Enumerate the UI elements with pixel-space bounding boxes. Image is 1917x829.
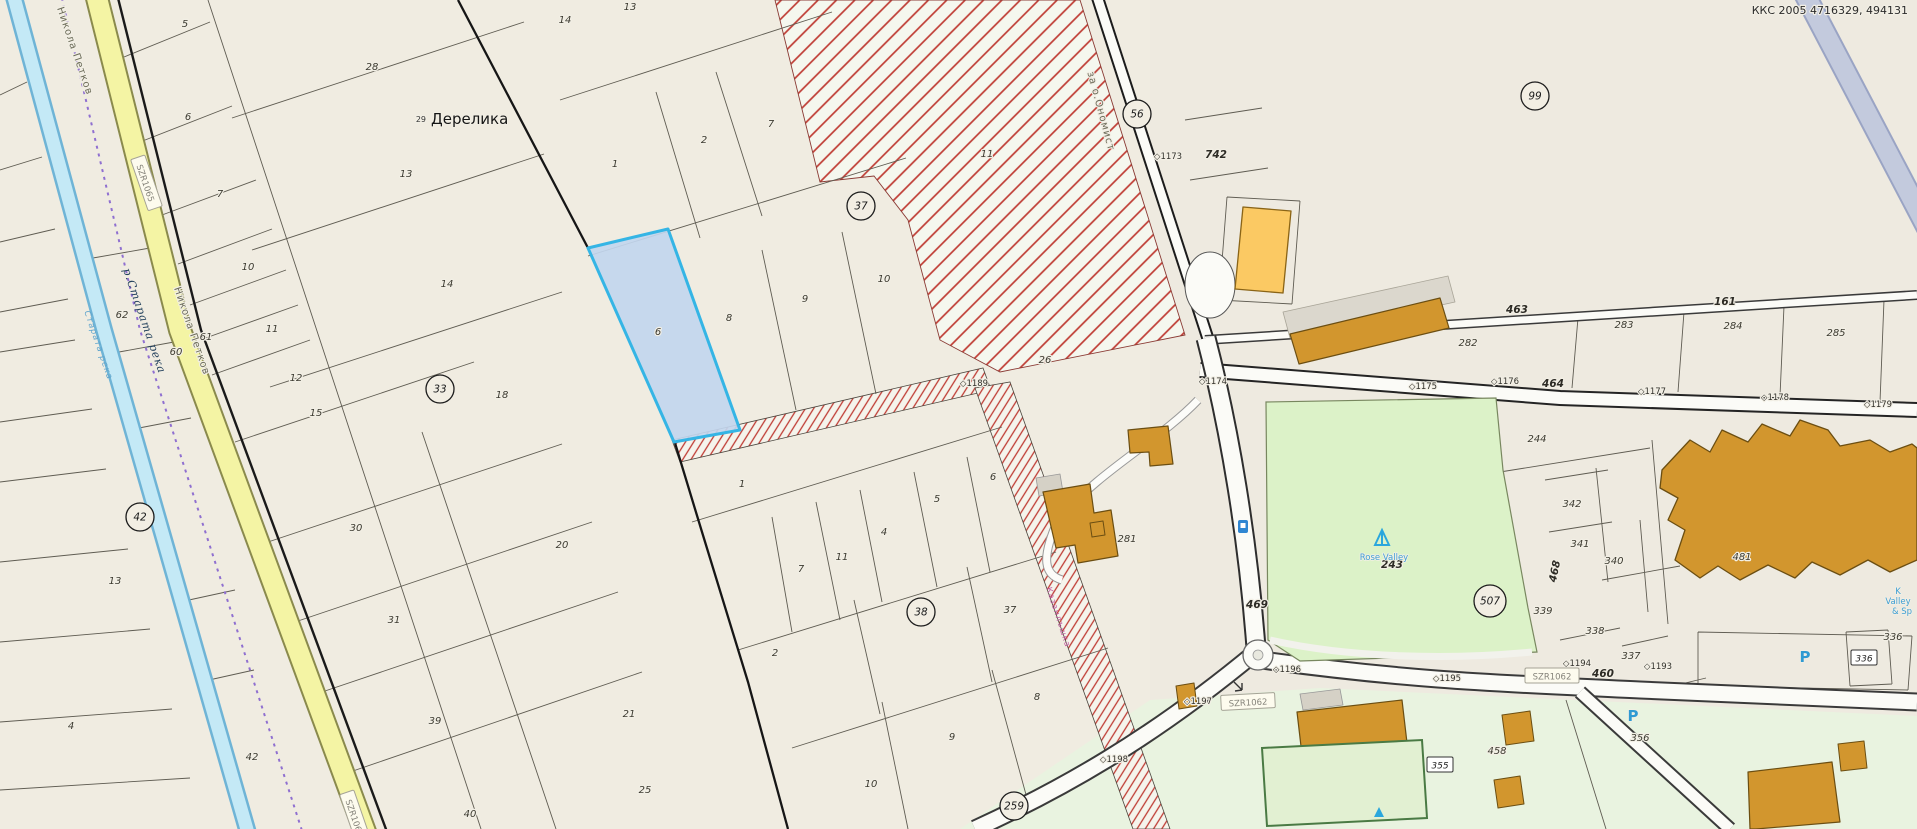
- map-label: 284: [1723, 321, 1742, 332]
- map-label: ◇1178: [1761, 393, 1789, 403]
- cadastral-map-canvas[interactable]: ККС 2005 4716329, 494131 29 Дерелика 567…: [0, 0, 1917, 829]
- map-label: 6: [655, 327, 661, 338]
- map-label: 9: [949, 732, 955, 743]
- map-label: 356: [1630, 733, 1649, 744]
- building-hut-2: [1494, 776, 1524, 808]
- map-label: 39: [429, 716, 442, 727]
- map-label: Valley: [1885, 597, 1910, 607]
- map-label: 30: [350, 523, 363, 534]
- svg-text:33: 33: [433, 384, 446, 396]
- map-label: 336: [1883, 632, 1902, 643]
- settlement-name: Дерелика: [431, 110, 508, 128]
- map-label: 7: [217, 189, 224, 200]
- map-label: 31: [388, 615, 401, 626]
- map-label: 26: [1039, 355, 1052, 366]
- building-southeast: [1748, 762, 1840, 829]
- map-label: ◇1196: [1273, 665, 1301, 675]
- map-label: ◇1189: [960, 379, 988, 389]
- map-label: ◇1193: [1644, 662, 1672, 672]
- circled-parcel-number: 99: [1521, 82, 1549, 110]
- map-label: 25: [639, 785, 652, 796]
- map-label: 11: [836, 552, 849, 563]
- svg-text:259: 259: [1004, 801, 1024, 813]
- circled-parcel-number: 33: [426, 375, 454, 403]
- map-sheet-code: ККС 2005 4716329, 494131: [1752, 4, 1908, 17]
- map-label: 481: [1732, 552, 1751, 563]
- svg-text:56: 56: [1130, 109, 1144, 121]
- map-label: 1: [739, 479, 745, 490]
- map-label: 6: [990, 472, 996, 483]
- map-label: 340: [1604, 556, 1623, 567]
- map-label: 10: [242, 262, 255, 273]
- map-label: 10: [878, 274, 891, 285]
- settlement-prefix: 29: [416, 115, 426, 124]
- map-label: 7: [768, 119, 775, 130]
- circled-parcel-number: 56: [1123, 100, 1151, 128]
- map-label: ◇1176: [1491, 377, 1519, 387]
- map-label: 9: [802, 294, 808, 305]
- svg-text:42: 42: [133, 512, 147, 524]
- map-label: 62: [116, 310, 129, 321]
- map-label: 11: [266, 324, 279, 335]
- map-label: 460: [1591, 668, 1614, 680]
- map-label: 15: [310, 408, 323, 419]
- map-label: 339: [1533, 606, 1552, 617]
- map-label: 12: [290, 373, 303, 384]
- map-label: 13: [109, 576, 122, 587]
- circled-parcel-number: 37: [847, 192, 875, 220]
- map-label: ◇1174: [1199, 377, 1227, 387]
- svg-text:37: 37: [854, 201, 868, 213]
- map-label: 161: [1714, 296, 1736, 308]
- circled-parcel-number: 259: [1000, 792, 1028, 820]
- map-label: 2: [701, 135, 707, 146]
- map-label: 10: [865, 779, 878, 790]
- map-label: Rose Valley: [1360, 553, 1408, 563]
- map-label: 21: [623, 709, 636, 720]
- svg-text:SZR1062: SZR1062: [1533, 673, 1572, 683]
- map-label: 37: [1004, 605, 1017, 616]
- map-label: 7: [798, 564, 805, 575]
- map-label: 18: [496, 390, 509, 401]
- map-label: 11: [981, 149, 994, 160]
- svg-text:SZR1062: SZR1062: [1228, 697, 1267, 709]
- map-label: ◇1195: [1433, 674, 1461, 684]
- map-label: ◇1179: [1864, 400, 1892, 410]
- map-label: 13: [400, 169, 413, 180]
- map-label: 14: [559, 15, 572, 26]
- map-label: 338: [1585, 626, 1604, 637]
- bus-stop-icon-window: [1241, 523, 1246, 528]
- park-rose-valley: [1266, 398, 1537, 661]
- road-ref-box: SZR1062: [1525, 668, 1579, 683]
- map-label: ◇1175: [1409, 382, 1437, 392]
- building-bright: [1235, 207, 1291, 293]
- map-label: 2: [772, 648, 778, 659]
- road-ref-box: 336: [1851, 650, 1877, 665]
- road-ref-box: 355: [1427, 757, 1453, 772]
- circled-parcel-number: 507: [1474, 585, 1506, 617]
- map-label: 5: [934, 494, 940, 505]
- map-label: 244: [1527, 434, 1546, 445]
- building-hut-3: [1838, 741, 1867, 771]
- map-label: & Sp: [1892, 607, 1912, 617]
- svg-text:38: 38: [914, 607, 928, 619]
- map-label: 281: [1117, 534, 1136, 545]
- map-label: 4: [881, 527, 887, 538]
- map-label: 4: [68, 721, 74, 732]
- map-label: 742: [1205, 149, 1227, 161]
- map-label: 464: [1541, 378, 1564, 390]
- svg-text:336: 336: [1855, 655, 1872, 665]
- map-label: 469: [1245, 599, 1268, 611]
- map-label: 463: [1505, 304, 1528, 316]
- map-label: 13: [624, 2, 637, 13]
- map-label: 42: [246, 752, 259, 763]
- map-label: 5: [182, 19, 188, 30]
- map-label: 458: [1487, 746, 1506, 757]
- map-label: ◇1198: [1100, 755, 1128, 765]
- map-label: 8: [726, 313, 732, 324]
- sports-court: [1262, 740, 1427, 826]
- building-hut-1: [1502, 711, 1534, 745]
- map-label: P: [1628, 707, 1639, 725]
- map-label: K: [1895, 587, 1901, 597]
- svg-text:355: 355: [1431, 762, 1448, 772]
- map-label: 14: [441, 279, 454, 290]
- map-label: 341: [1570, 539, 1589, 550]
- map-label: 285: [1826, 328, 1845, 339]
- map-label: 28: [366, 62, 379, 73]
- map-label: P: [1800, 648, 1811, 666]
- map-label: 20: [556, 540, 569, 551]
- svg-text:99: 99: [1528, 91, 1542, 103]
- building-hut-small: [1090, 521, 1105, 537]
- map-label: 6: [185, 112, 191, 123]
- map-label: ◇1197: [1184, 697, 1212, 707]
- map-label: 40: [464, 809, 477, 820]
- map-label: 283: [1614, 320, 1633, 331]
- circled-parcel-number: 42: [126, 503, 154, 531]
- map-label: ◇1177: [1638, 387, 1666, 397]
- road-junction-bulb: [1185, 252, 1235, 318]
- svg-text:507: 507: [1480, 596, 1500, 608]
- road-ref-box: SZR1062: [1221, 693, 1276, 711]
- map-label: 8: [1034, 692, 1040, 703]
- map-svg: ККС 2005 4716329, 494131 29 Дерелика 567…: [0, 0, 1917, 829]
- map-label: 60: [170, 347, 183, 358]
- map-label: 282: [1458, 338, 1477, 349]
- map-label: 1: [612, 159, 618, 170]
- map-label: 342: [1562, 499, 1581, 510]
- map-label: ◇1173: [1154, 152, 1182, 162]
- map-label: 337: [1621, 651, 1641, 662]
- circled-parcel-number: 38: [907, 598, 935, 626]
